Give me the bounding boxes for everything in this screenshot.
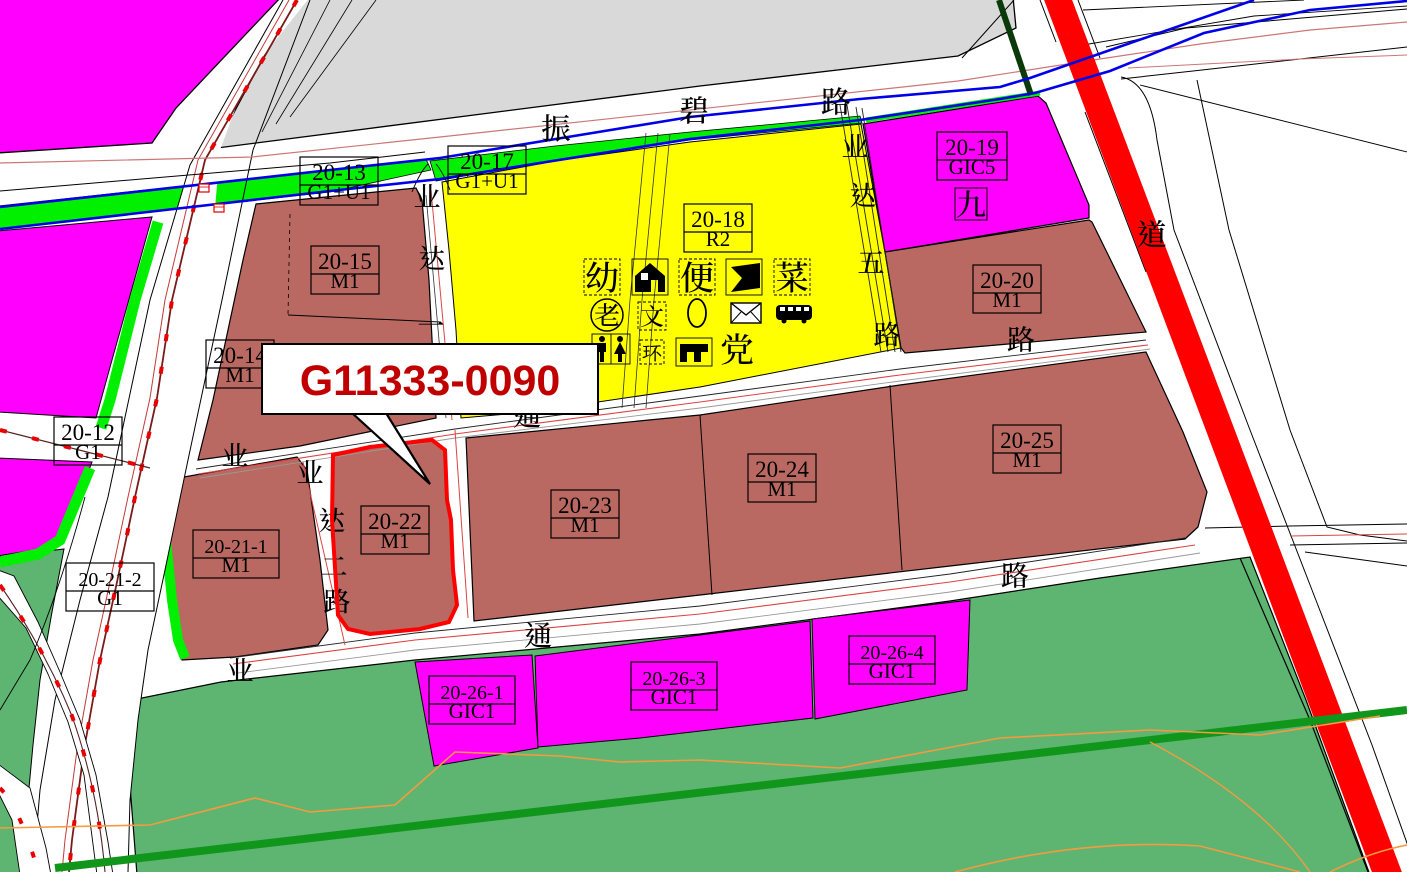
svg-text:M1: M1 <box>570 513 599 537</box>
svg-text:G1: G1 <box>97 586 123 610</box>
svg-text:M1: M1 <box>225 363 254 387</box>
svg-text:M1: M1 <box>767 477 796 501</box>
svg-text:GIC5: GIC5 <box>949 155 996 179</box>
svg-text:GIC1: GIC1 <box>651 685 698 709</box>
svg-text:R2: R2 <box>706 227 731 251</box>
svg-text:M1: M1 <box>330 269 359 293</box>
svg-text:GIC1: GIC1 <box>449 699 496 723</box>
svg-text:G1+U1: G1+U1 <box>455 169 518 193</box>
svg-text:M1: M1 <box>221 553 250 577</box>
svg-text:G1+U1: G1+U1 <box>307 180 370 204</box>
svg-text:GIC1: GIC1 <box>869 659 916 683</box>
svg-text:G11333-0090: G11333-0090 <box>300 357 561 405</box>
svg-text:M1: M1 <box>1012 448 1041 472</box>
svg-text:M1: M1 <box>380 529 409 553</box>
svg-text:G1: G1 <box>75 440 101 464</box>
svg-text:M1: M1 <box>992 288 1021 312</box>
